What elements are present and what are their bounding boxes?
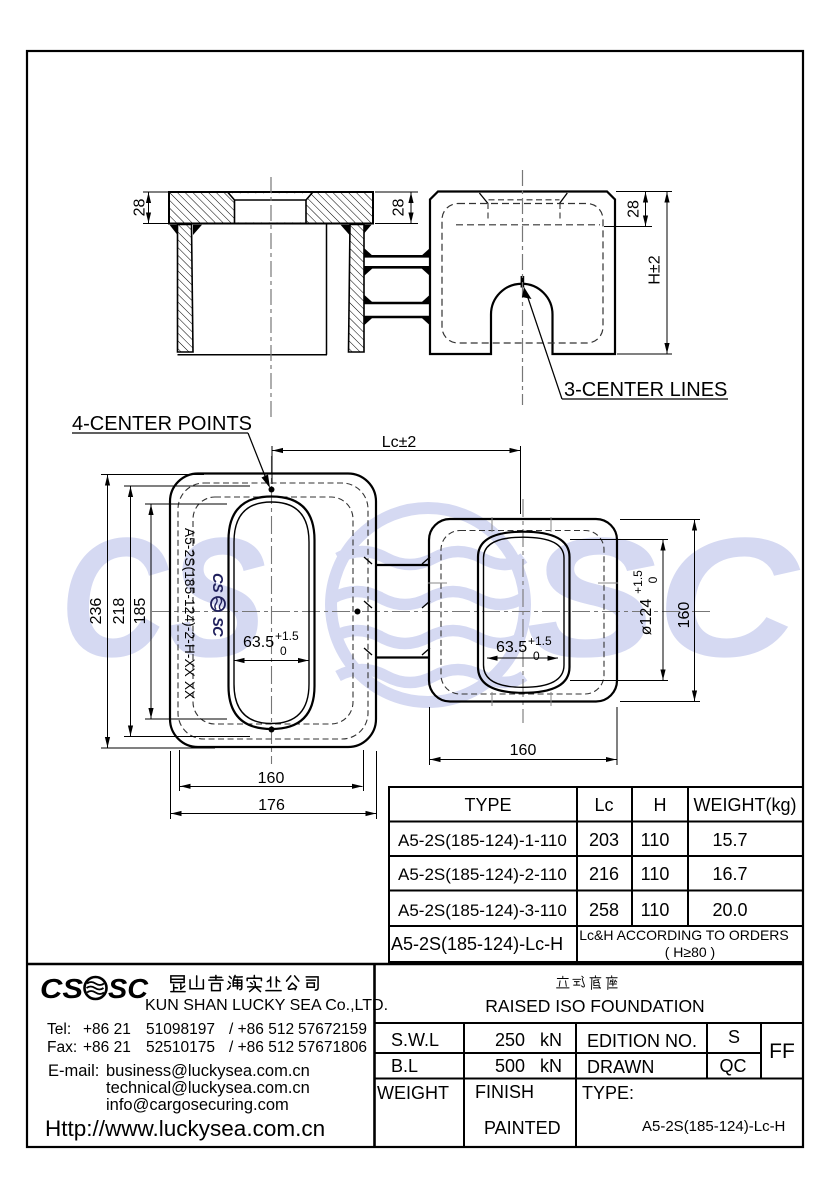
svg-text:RAISED ISO FOUNDATION: RAISED ISO FOUNDATION (485, 996, 704, 1016)
svg-text:15.7: 15.7 (712, 830, 747, 850)
svg-text:Tel:+86 2151098197/ +86 512576: Tel:+86 2151098197/ +86 51257672159 (47, 1021, 367, 1038)
svg-text:110: 110 (641, 830, 670, 850)
svg-text:ø124: ø124 (638, 599, 655, 636)
svg-text:A5-2S(185-124)-1-110: A5-2S(185-124)-1-110 (398, 831, 567, 850)
svg-text:TYPE:: TYPE: (582, 1083, 634, 1103)
svg-text:160: 160 (510, 742, 537, 759)
svg-text:203: 203 (589, 830, 619, 850)
svg-text:A5-2S(185-124)-2-H-XX XX: A5-2S(185-124)-2-H-XX XX (182, 528, 197, 699)
svg-text:+1.5: +1.5 (528, 634, 552, 648)
svg-text:S.W.L: S.W.L (391, 1030, 439, 1050)
svg-text:16.7: 16.7 (712, 864, 747, 884)
svg-text:0: 0 (646, 576, 660, 583)
svg-text:Http://www.luckysea.com.cn: Http://www.luckysea.com.cn (45, 1116, 325, 1141)
svg-text:WEIGHT(kg): WEIGHT(kg) (694, 795, 797, 815)
svg-text:20.0: 20.0 (712, 900, 747, 920)
svg-text:28: 28 (626, 200, 643, 218)
svg-text:SC: SC (209, 617, 225, 637)
svg-text:business@luckysea.com.cn: business@luckysea.com.cn (106, 1062, 310, 1080)
svg-text:185: 185 (132, 598, 149, 625)
svg-text:236: 236 (88, 598, 105, 625)
svg-text:218: 218 (111, 598, 128, 625)
svg-text:110: 110 (641, 864, 670, 884)
svg-text:S: S (728, 1027, 740, 1047)
svg-text:B.L: B.L (391, 1056, 418, 1076)
svg-text:3-CENTER LINES: 3-CENTER LINES (564, 379, 727, 401)
svg-text:CS: CS (209, 573, 225, 593)
svg-text:WEIGHT: WEIGHT (377, 1083, 449, 1103)
svg-text:216: 216 (589, 864, 619, 884)
svg-text:A5-2S(185-124)-2-110: A5-2S(185-124)-2-110 (398, 865, 567, 884)
svg-text:250: 250 (495, 1030, 525, 1050)
svg-text:PAINTED: PAINTED (484, 1118, 561, 1138)
svg-text:TYPE: TYPE (464, 795, 511, 815)
svg-text:FINISH: FINISH (475, 1082, 534, 1102)
svg-text:H: H (654, 795, 667, 815)
svg-text:A5-2S(185-124)-Lc-H: A5-2S(185-124)-Lc-H (642, 1118, 785, 1135)
svg-text:kN: kN (540, 1056, 562, 1076)
svg-text:63.5: 63.5 (496, 639, 527, 656)
svg-text:176: 176 (258, 797, 285, 814)
svg-text:160: 160 (258, 770, 285, 787)
svg-text:( H≥80 ): ( H≥80 ) (665, 944, 715, 960)
svg-text:Fax:+86 2152510175/ +86 512576: Fax:+86 2152510175/ +86 51257671806 (47, 1039, 367, 1056)
svg-text:A5-2S(185-124)-3-110: A5-2S(185-124)-3-110 (398, 901, 567, 920)
svg-text:28: 28 (391, 199, 408, 217)
svg-text:0: 0 (280, 644, 287, 658)
svg-text:kN: kN (540, 1030, 562, 1050)
svg-text:technical@luckysea.com.cn: technical@luckysea.com.cn (106, 1079, 310, 1097)
svg-text:+1.5: +1.5 (275, 629, 299, 643)
svg-text:500: 500 (495, 1056, 525, 1076)
svg-text:63.5: 63.5 (243, 634, 274, 651)
svg-text:EDITION NO.: EDITION NO. (587, 1031, 697, 1051)
svg-text:FF: FF (769, 1040, 795, 1063)
svg-text:SC: SC (108, 973, 149, 1004)
svg-text:Lc&H ACCORDING TO ORDERS: Lc&H ACCORDING TO ORDERS (579, 927, 789, 943)
svg-text:Lc±2: Lc±2 (382, 434, 417, 451)
svg-text:160: 160 (676, 602, 693, 629)
svg-text:A5-2S(185-124)-Lc-H: A5-2S(185-124)-Lc-H (391, 934, 563, 954)
svg-text:+1.5: +1.5 (631, 570, 645, 594)
svg-text:Lc: Lc (594, 795, 613, 815)
svg-text:110: 110 (641, 900, 670, 920)
svg-text:H±2: H±2 (647, 255, 664, 284)
svg-text:258: 258 (589, 900, 619, 920)
svg-text:0: 0 (533, 649, 540, 663)
svg-text:KUN SHAN LUCKY SEA Co.,LTD.: KUN SHAN LUCKY SEA Co.,LTD. (145, 997, 388, 1014)
svg-text:4-CENTER POINTS: 4-CENTER POINTS (72, 413, 252, 435)
svg-text:info@cargosecuring.com: info@cargosecuring.com (106, 1096, 289, 1114)
svg-text:DRAWN: DRAWN (587, 1057, 654, 1077)
svg-text:QC: QC (720, 1056, 747, 1076)
svg-text:CS: CS (40, 973, 83, 1004)
svg-text:E-mail:: E-mail: (48, 1062, 99, 1080)
svg-text:28: 28 (132, 199, 149, 217)
